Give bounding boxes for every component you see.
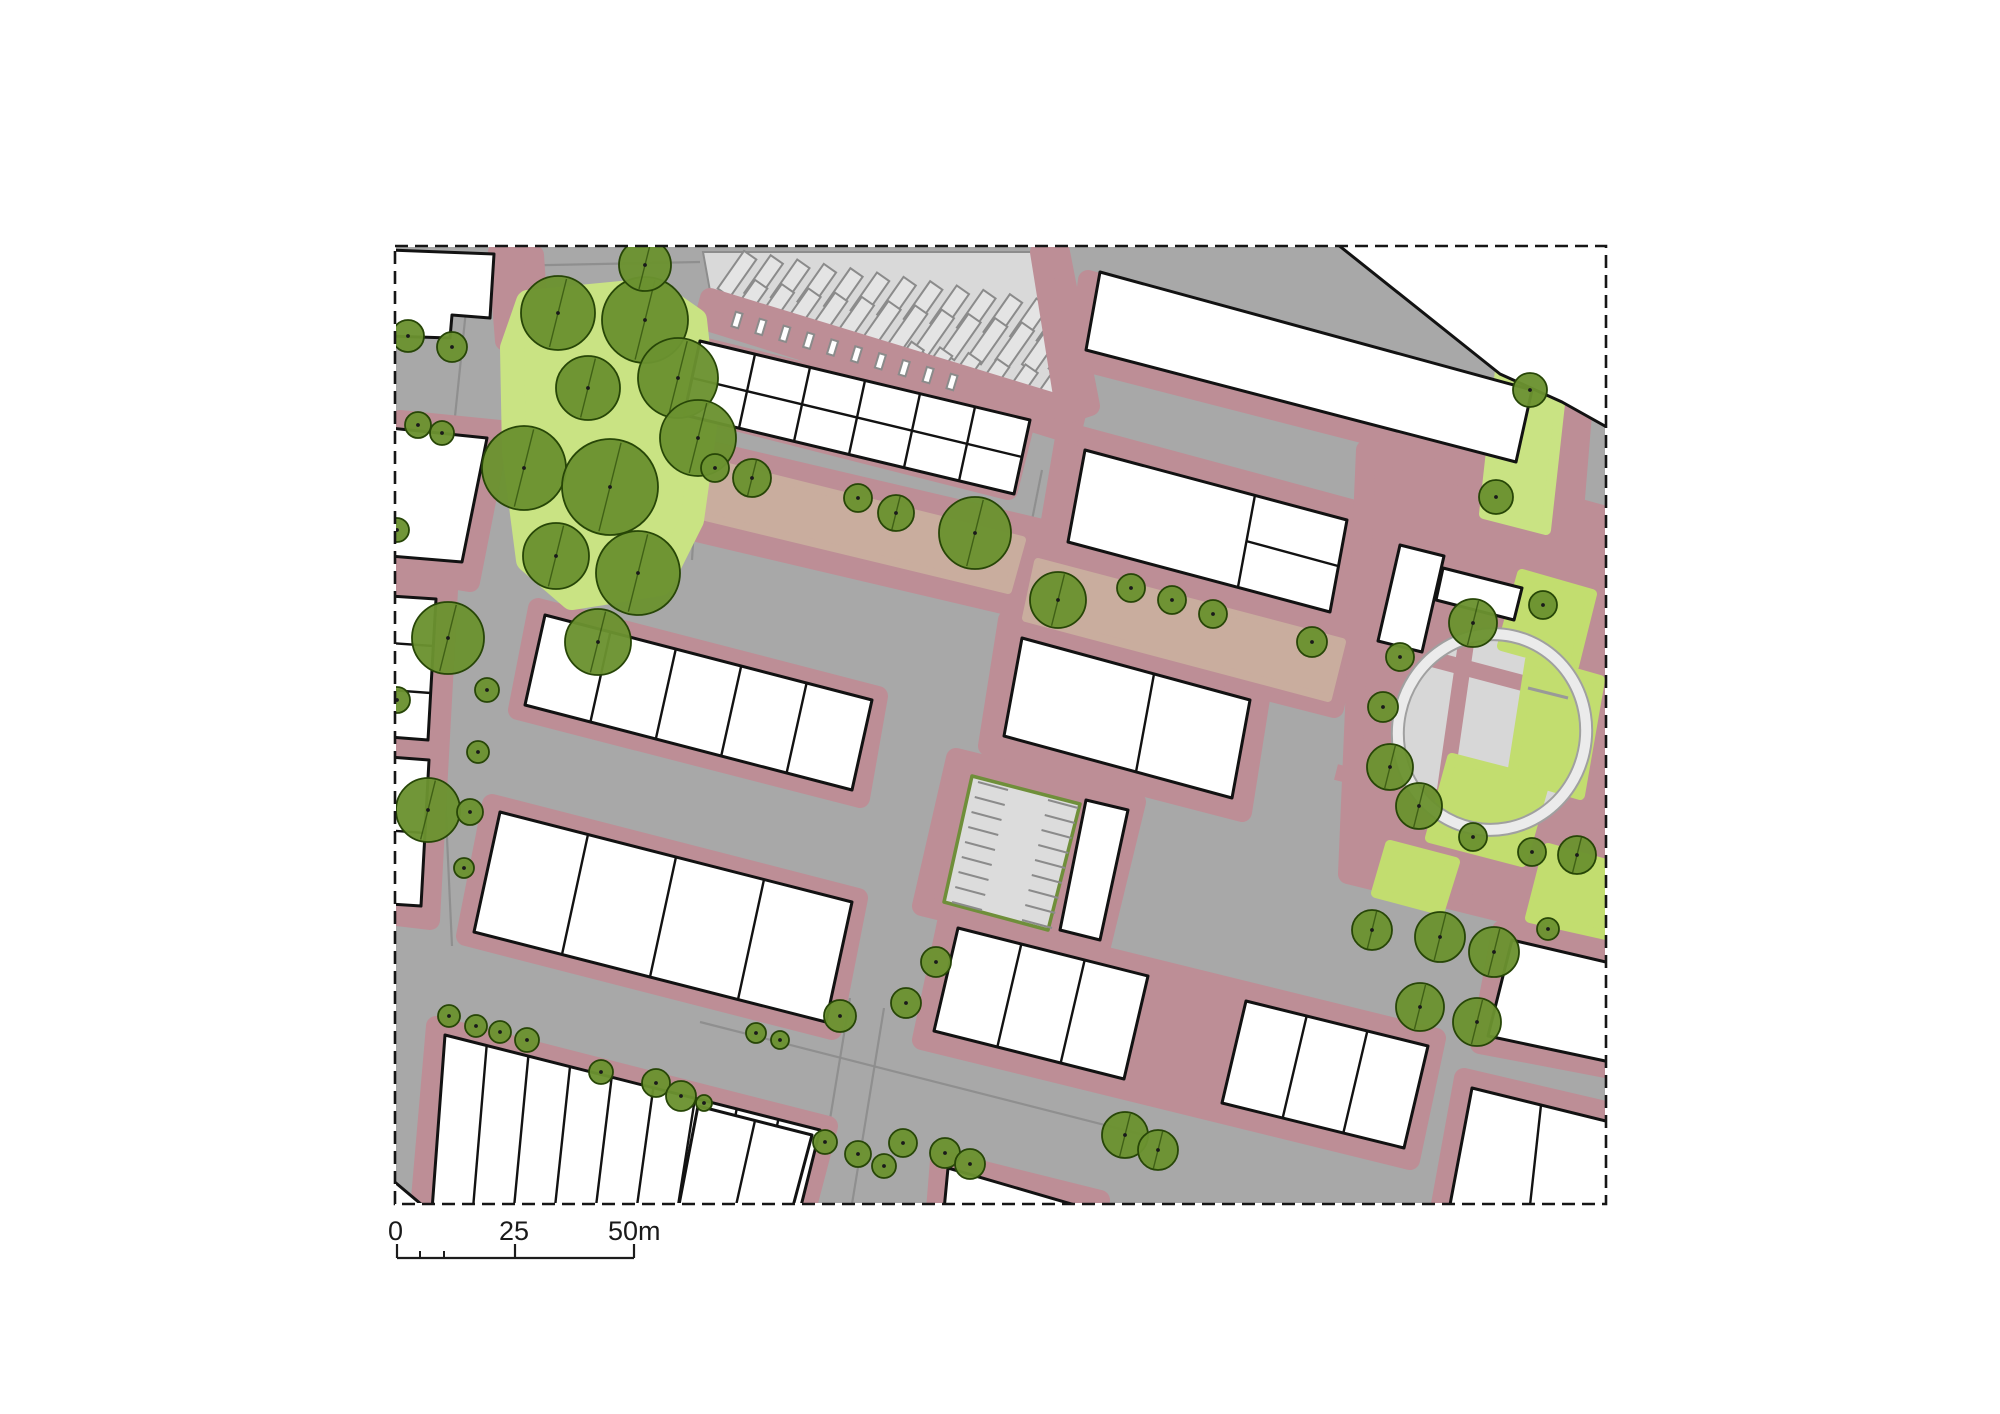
- scale-label-0: 0: [388, 1218, 403, 1245]
- tree-icon: [1117, 574, 1145, 602]
- tree-icon: [562, 439, 658, 535]
- tree-icon: [523, 523, 589, 589]
- tree-icon: [385, 518, 409, 542]
- tree-icon: [1518, 838, 1546, 866]
- tree-icon: [1469, 927, 1519, 977]
- tree-icon: [1449, 599, 1497, 647]
- tree-icon: [467, 741, 489, 763]
- tree-icon: [1297, 627, 1327, 657]
- tree-icon: [430, 421, 454, 445]
- tree-icon: [824, 1000, 856, 1032]
- tree-icon: [1459, 823, 1487, 851]
- tree-icon: [396, 778, 460, 842]
- tree-icon: [878, 495, 914, 531]
- tree-icon: [556, 356, 620, 420]
- tree-icon: [696, 1095, 712, 1111]
- tree-icon: [438, 1005, 460, 1027]
- tree-icon: [872, 1154, 896, 1178]
- map-content: [384, 239, 1612, 1210]
- tree-icon: [1513, 373, 1547, 407]
- tree-icon: [437, 332, 467, 362]
- tree-icon: [1352, 910, 1392, 950]
- tree-icon: [1453, 998, 1501, 1046]
- tree-icon: [813, 1130, 837, 1154]
- tree-icon: [1529, 591, 1557, 619]
- tree-icon: [771, 1031, 789, 1049]
- tree-icon: [489, 1021, 511, 1043]
- tree-icon: [405, 412, 431, 438]
- tree-icon: [515, 1028, 539, 1052]
- tree-icon: [891, 988, 921, 1018]
- tree-icon: [412, 602, 484, 674]
- tree-icon: [1396, 783, 1442, 829]
- tree-icon: [1138, 1130, 1178, 1170]
- tree-icon: [1368, 692, 1398, 722]
- tree-icon: [565, 609, 631, 675]
- tree-icon: [844, 484, 872, 512]
- tree-icon: [1199, 600, 1227, 628]
- tree-icon: [465, 1015, 487, 1037]
- tree-icon: [1415, 912, 1465, 962]
- tree-icon: [955, 1149, 985, 1179]
- scale-label-25: 25: [499, 1218, 529, 1245]
- tree-icon: [1386, 643, 1414, 671]
- tree-icon: [1367, 744, 1413, 790]
- site-plan-page: 0 25 50m: [0, 0, 2000, 1414]
- tree-icon: [482, 426, 566, 510]
- scale-bar: [397, 1244, 634, 1258]
- tree-icon: [701, 454, 729, 482]
- tree-icon: [1030, 572, 1086, 628]
- tree-icon: [1537, 918, 1559, 940]
- tree-icon: [454, 858, 474, 878]
- tree-icon: [457, 799, 483, 825]
- tree-icon: [1396, 983, 1444, 1031]
- site-plan-map: [0, 0, 2000, 1414]
- tree-icon: [845, 1141, 871, 1167]
- tree-icon: [666, 1081, 696, 1111]
- tree-icon: [475, 678, 499, 702]
- tree-icon: [521, 276, 595, 350]
- tree-icon: [1158, 586, 1186, 614]
- tree-icon: [1479, 480, 1513, 514]
- tree-icon: [889, 1129, 917, 1157]
- tree-icon: [939, 497, 1011, 569]
- tree-icon: [746, 1023, 766, 1043]
- tree-icon: [733, 459, 771, 497]
- tree-icon: [596, 531, 680, 615]
- tree-icon: [921, 947, 951, 977]
- tree-icon: [384, 687, 410, 713]
- tree-icon: [392, 320, 424, 352]
- tree-icon: [589, 1060, 613, 1084]
- scale-label-50m: 50m: [608, 1218, 661, 1245]
- tree-icon: [1558, 836, 1596, 874]
